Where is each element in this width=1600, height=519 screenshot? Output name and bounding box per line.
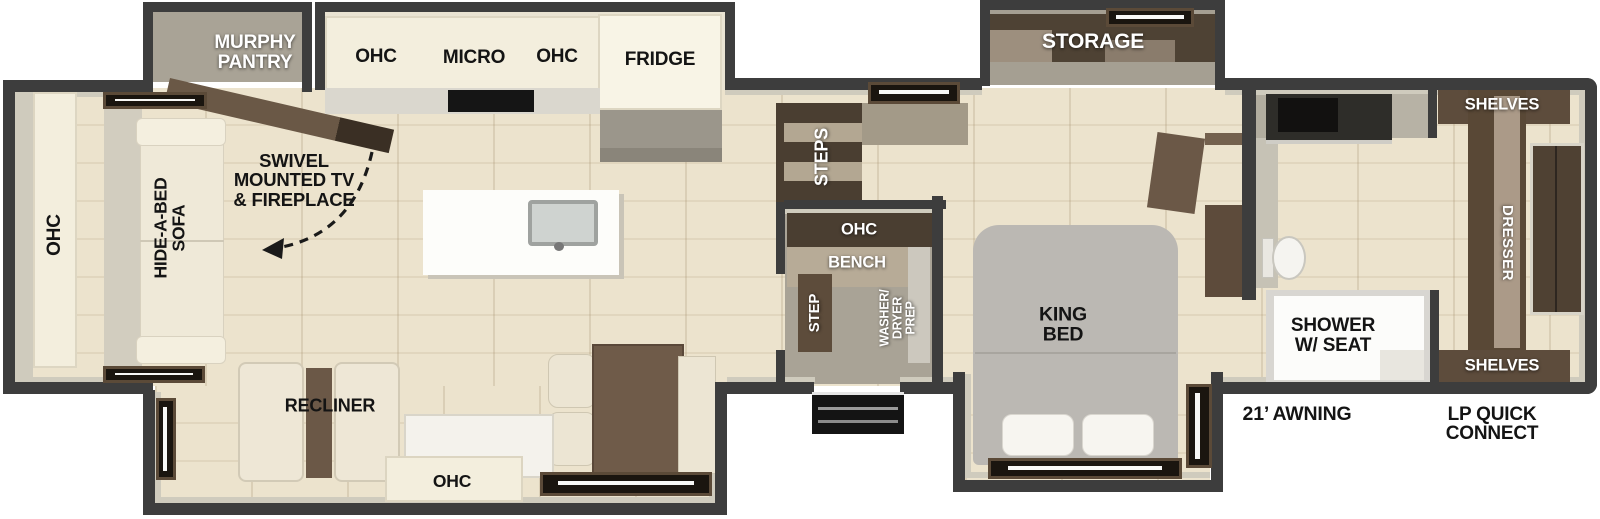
window-glass bbox=[1008, 466, 1162, 470]
wall-stair-halfwall bbox=[776, 103, 784, 202]
wall-storage-right bbox=[1215, 0, 1225, 86]
shower-seat bbox=[1380, 350, 1424, 380]
cooktop bbox=[448, 90, 534, 112]
floorplan: MURPHY PANTRY OHC MICRO OHC FRIDGE SWIVE… bbox=[0, 0, 1600, 519]
wall-pantry-top bbox=[143, 2, 310, 12]
window-glass bbox=[1116, 15, 1183, 18]
wall-kitchen-slide-top bbox=[315, 2, 735, 12]
label-shower-w-seat: SHOWER W/ SEAT bbox=[1291, 316, 1375, 356]
wall-foyer-left-lower bbox=[776, 350, 785, 392]
label-foyer-step: STEP bbox=[807, 294, 823, 332]
wall-bed-slide-bottom bbox=[953, 480, 1223, 492]
pillow-left bbox=[1002, 414, 1074, 456]
wall-pantry-right bbox=[302, 2, 312, 92]
entry-step-edge bbox=[818, 420, 898, 423]
wardrobe bbox=[1530, 143, 1584, 315]
window-slide-left bbox=[156, 398, 176, 480]
wall-bed-bath-divider bbox=[1242, 88, 1256, 300]
label-slide-ohc: OHC bbox=[433, 472, 471, 490]
dinette-chair-1 bbox=[548, 354, 596, 408]
window-top-mid bbox=[868, 82, 960, 104]
entry-door-steps bbox=[812, 392, 904, 434]
wall-foyer-top bbox=[776, 200, 946, 209]
island-sink bbox=[528, 200, 598, 246]
label-foyer-bench: BENCH bbox=[828, 254, 886, 271]
wall-bath-stub-bottom bbox=[1430, 290, 1439, 384]
label-kitchen-ohc-right: OHC bbox=[536, 47, 578, 67]
wall-foyer-left-upper bbox=[776, 200, 785, 274]
label-lp-quick-connect: LP QUICK CONNECT bbox=[1446, 405, 1539, 443]
label-king-bed: KING BED bbox=[1039, 305, 1087, 346]
sofa-armrest-top bbox=[136, 118, 226, 146]
pillow-right bbox=[1082, 414, 1154, 456]
wall-living-slide-left bbox=[143, 390, 155, 515]
recliner-console bbox=[306, 368, 332, 478]
dinette-table bbox=[592, 344, 684, 476]
wall-pantry-left bbox=[143, 2, 153, 92]
label-foyer-ohc: OHC bbox=[841, 221, 877, 238]
dinette-bench bbox=[678, 356, 716, 474]
dinette-chair-2 bbox=[548, 412, 596, 466]
label-kitchen-ohc-left: OHC bbox=[355, 47, 397, 67]
king-bed-seam bbox=[975, 352, 1176, 354]
label-kitchen-micro: MICRO bbox=[443, 48, 505, 68]
label-steps: STEPS bbox=[813, 128, 832, 186]
window-rear-top bbox=[103, 92, 207, 109]
sink-faucet bbox=[554, 242, 564, 251]
window-glass bbox=[163, 407, 167, 471]
vanity-side-cabinet bbox=[1392, 94, 1430, 138]
wall-living-slide-right bbox=[715, 382, 727, 515]
wall-bed-slide-left bbox=[953, 372, 965, 492]
label-recliner: RECLINER bbox=[285, 397, 375, 416]
window-bed-slide-right bbox=[1186, 384, 1212, 468]
window-glass bbox=[558, 481, 694, 485]
sofa-armrest-bottom bbox=[136, 336, 226, 364]
wall-bedroom-divider bbox=[932, 196, 943, 392]
label-shelves-top: SHELVES bbox=[1465, 96, 1539, 113]
label-awning: 21’ AWNING bbox=[1243, 404, 1352, 424]
wall-rear-cap bbox=[3, 80, 15, 394]
wardrobe-divider bbox=[1555, 146, 1557, 312]
swivel-arrowhead-icon bbox=[262, 238, 284, 259]
label-dresser: DRESSER bbox=[1499, 205, 1515, 281]
wall-kitchen-slide-left bbox=[315, 2, 325, 90]
label-fridge: FRIDGE bbox=[625, 50, 696, 70]
window-glass bbox=[879, 90, 950, 94]
window-rear-bottom bbox=[103, 366, 205, 383]
wall-bottom-front bbox=[1222, 382, 1597, 394]
toilet bbox=[1272, 236, 1306, 280]
fridge-base-shadow bbox=[600, 148, 722, 162]
lining-left bbox=[15, 92, 33, 382]
label-rear-ohc: OHC bbox=[45, 214, 65, 256]
lining-bed-slide-left bbox=[965, 374, 971, 478]
window-glass bbox=[115, 99, 195, 102]
vanity-sink bbox=[1278, 98, 1338, 132]
wall-bath-stub-top bbox=[1428, 88, 1437, 138]
recliner-left bbox=[238, 362, 304, 482]
window-glass bbox=[1195, 393, 1200, 459]
label-hide-a-bed-sofa: HIDE-A-BED SOFA bbox=[152, 177, 189, 278]
window-bed-slide-bottom bbox=[988, 458, 1182, 479]
label-murphy-pantry: MURPHY PANTRY bbox=[214, 33, 295, 73]
window-slide-bottom bbox=[540, 472, 712, 496]
label-swivel-tv: SWIVEL MOUNTED TV & FIREPLACE bbox=[233, 151, 354, 209]
wall-bottom-a bbox=[718, 382, 814, 394]
wall-front-cap bbox=[1585, 78, 1597, 394]
label-shelves-bottom: SHELVES bbox=[1465, 357, 1539, 374]
wall-rear-bottom bbox=[3, 382, 153, 394]
wall-living-slide-bottom bbox=[143, 503, 727, 515]
wall-storage-left bbox=[980, 0, 990, 86]
wall-kitchen-slide-right bbox=[725, 2, 735, 90]
entry-step-edge bbox=[818, 407, 898, 410]
label-washer-dryer-prep: WASHER/ DRYER PREP bbox=[878, 290, 917, 347]
vanity-edge bbox=[1266, 140, 1392, 144]
window-glass bbox=[115, 373, 194, 376]
wall-top-front bbox=[1215, 78, 1597, 90]
window-storage bbox=[1106, 8, 1194, 27]
label-storage: STORAGE bbox=[1042, 31, 1144, 53]
stair-landing bbox=[862, 103, 968, 145]
wall-rear-top bbox=[3, 80, 153, 92]
